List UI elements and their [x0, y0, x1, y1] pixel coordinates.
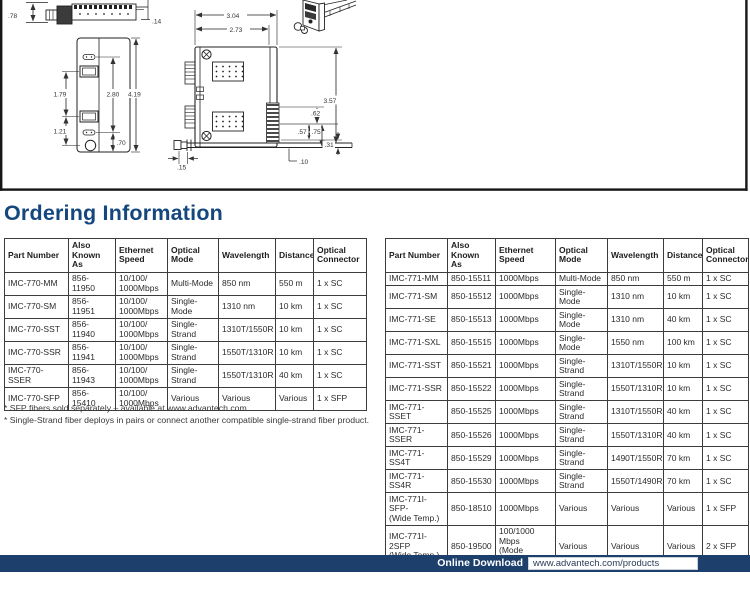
- side-view-drawing: .78 .14: [8, 0, 161, 26]
- table-cell: 1310 nm: [219, 295, 276, 318]
- dimension-label: .57: [298, 129, 307, 136]
- table-cell: 1550T/1310R: [219, 364, 276, 387]
- column-header: Wavelength: [608, 239, 664, 273]
- dimension-label: .15: [177, 165, 186, 172]
- ordering-table-imc770: Part NumberAlso Known AsEthernet SpeedOp…: [4, 238, 367, 411]
- table-cell: Single-Mode: [168, 295, 219, 318]
- table-cell: IMC-771-SS4R: [386, 470, 448, 493]
- table-cell: 1000Mbps: [496, 470, 556, 493]
- table-row: IMC-771-SSET850-155251000MbpsSingle-Stra…: [386, 401, 749, 424]
- online-download-label: Online Download: [0, 555, 523, 572]
- table-cell: 10 km: [664, 286, 703, 309]
- table-cell: 1 x SC: [703, 332, 749, 355]
- table-cell: IMC-770-MM: [5, 272, 69, 295]
- table-cell: 10 km: [276, 341, 314, 364]
- dimension-label: 3.57: [324, 98, 337, 105]
- table-cell: 550 m: [664, 272, 703, 286]
- isometric-view-drawing: [294, 0, 356, 34]
- table-row: IMC-771-SE850-155131000MbpsSingle-Mode13…: [386, 309, 749, 332]
- table-cell: 70 km: [664, 470, 703, 493]
- table-cell: 1000Mbps: [496, 424, 556, 447]
- column-header: Optical Mode: [556, 239, 608, 273]
- table-cell: 40 km: [664, 401, 703, 424]
- dimension-label: 4.19: [128, 92, 141, 99]
- table-cell: Multi-Mode: [556, 272, 608, 286]
- table-cell: 850-18510: [448, 493, 496, 526]
- column-header: Also Known As: [69, 239, 116, 273]
- table-cell: IMC-771I-SFP- (Wide Temp.): [386, 493, 448, 526]
- table-cell: 856-11950: [69, 272, 116, 295]
- table-cell: 10/100/ 1000Mbps: [116, 341, 168, 364]
- table-row: IMC-770-SSER856-1194310/100/ 1000MbpsSin…: [5, 364, 367, 387]
- table-cell: Single-Strand: [168, 364, 219, 387]
- table-row: IMC-771-SS4T850-155291000MbpsSingle-Stra…: [386, 447, 749, 470]
- column-header: Distance: [664, 239, 703, 273]
- table-cell: IMC-771-SSET: [386, 401, 448, 424]
- table-cell: 1310T/1550R: [608, 355, 664, 378]
- ordering-table-imc771: Part NumberAlso Known AsEthernet SpeedOp…: [385, 238, 749, 568]
- table-cell: 1 x SC: [703, 286, 749, 309]
- page-title: Ordering Information: [4, 201, 223, 226]
- dimension-label: 1.79: [54, 92, 67, 99]
- dimension-label: .75: [312, 129, 321, 136]
- dimension-label: 2.73: [230, 27, 243, 34]
- table-cell: IMC-771-SS4T: [386, 447, 448, 470]
- table-cell: 1000Mbps: [496, 272, 556, 286]
- dimension-label: .62: [311, 111, 320, 118]
- table-cell: Single-Strand: [556, 424, 608, 447]
- table-cell: 1000Mbps: [496, 355, 556, 378]
- table-cell: Single-Strand: [556, 447, 608, 470]
- column-header: Ethernet Speed: [496, 239, 556, 273]
- table-cell: 850-15513: [448, 309, 496, 332]
- table-cell: 40 km: [276, 364, 314, 387]
- column-header: Distance: [276, 239, 314, 273]
- dimension-label: .78: [8, 13, 17, 20]
- footnote-sfp: * SFP fibers sold separately – available…: [4, 403, 369, 415]
- table-cell: IMC-771-SST: [386, 355, 448, 378]
- footnote-single-strand: * Single-Strand fiber deploys in pairs o…: [4, 415, 369, 427]
- table-cell: 856-11941: [69, 341, 116, 364]
- table-cell: 1000Mbps: [496, 378, 556, 401]
- table-row: IMC-770-SST856-1194010/100/ 1000MbpsSing…: [5, 318, 367, 341]
- table-cell: Single-Strand: [168, 341, 219, 364]
- dimension-label: 1.21: [54, 129, 67, 136]
- table-cell: Single-Strand: [556, 355, 608, 378]
- table-row: IMC-771-MM850-155111000MbpsMulti-Mode850…: [386, 272, 749, 286]
- table-cell: Various: [556, 493, 608, 526]
- table-cell: Single-Strand: [556, 470, 608, 493]
- table-cell: 1000Mbps: [496, 309, 556, 332]
- table-cell: Single-Mode: [556, 286, 608, 309]
- table-cell: 850-15530: [448, 470, 496, 493]
- table-cell: 1310T/1550R: [608, 401, 664, 424]
- column-header: Part Number: [386, 239, 448, 273]
- table-cell: Various: [608, 493, 664, 526]
- column-header: Optical Connector: [314, 239, 367, 273]
- table-cell: IMC-770-SSR: [5, 341, 69, 364]
- table-cell: IMC-771-SE: [386, 309, 448, 332]
- table-row: IMC-771-SXL850-155151000MbpsSingle-Mode1…: [386, 332, 749, 355]
- table-row: IMC-770-SSR856-1194110/100/ 1000MbpsSing…: [5, 341, 367, 364]
- table-cell: 1550T/1310R: [219, 341, 276, 364]
- table-cell: 550 m: [276, 272, 314, 295]
- column-header: Optical Connector: [703, 239, 749, 273]
- table-cell: 1 x SC: [314, 341, 367, 364]
- table-cell: IMC-771-MM: [386, 272, 448, 286]
- table-cell: 10 km: [276, 295, 314, 318]
- datasheet-page: .78 .14 1.79 1.21: [0, 0, 750, 591]
- table-cell: 1550T/1310R: [608, 378, 664, 401]
- table-cell: 10/100/ 1000Mbps: [116, 364, 168, 387]
- table-cell: 1000Mbps: [496, 447, 556, 470]
- table-cell: 10/100/ 1000Mbps: [116, 272, 168, 295]
- table-cell: 40 km: [664, 424, 703, 447]
- header-row: Part NumberAlso Known AsEthernet SpeedOp…: [386, 239, 749, 273]
- table-cell: IMC-770-SM: [5, 295, 69, 318]
- column-header: Ethernet Speed: [116, 239, 168, 273]
- table-cell: 1310 nm: [608, 309, 664, 332]
- table-cell: 10/100/ 1000Mbps: [116, 295, 168, 318]
- table-cell: 1 x SC: [703, 378, 749, 401]
- table-cell: 1550 nm: [608, 332, 664, 355]
- dimension-label: .14: [152, 19, 161, 26]
- table-cell: 1310 nm: [608, 286, 664, 309]
- table-cell: IMC-770-SST: [5, 318, 69, 341]
- table-cell: 850-15515: [448, 332, 496, 355]
- table-cell: 70 km: [664, 447, 703, 470]
- table-cell: Various: [664, 493, 703, 526]
- table-cell: IMC-771-SM: [386, 286, 448, 309]
- table-cell: 1 x SC: [703, 470, 749, 493]
- table-cell: Single-Mode: [556, 309, 608, 332]
- table-cell: 1550T/1310R: [608, 424, 664, 447]
- table-cell: Single-Strand: [556, 378, 608, 401]
- table-cell: 1 x SC: [314, 295, 367, 318]
- table-cell: 1 x SC: [314, 272, 367, 295]
- table-cell: 10 km: [276, 318, 314, 341]
- table-cell: 1 x SC: [703, 401, 749, 424]
- footer-bar: Online Download www.advantech.com/produc…: [0, 555, 750, 572]
- mechanical-drawing: .78 .14 1.79 1.21: [0, 0, 750, 196]
- table-cell: 850-15512: [448, 286, 496, 309]
- table-cell: 856-11951: [69, 295, 116, 318]
- table-row: IMC-771-SSER850-155261000MbpsSingle-Stra…: [386, 424, 749, 447]
- table-cell: 10 km: [664, 378, 703, 401]
- table-cell: 1 x SC: [703, 309, 749, 332]
- table-cell: Single-Mode: [556, 332, 608, 355]
- table-cell: 1550T/1490R: [608, 470, 664, 493]
- table-cell: 1000Mbps: [496, 286, 556, 309]
- table-cell: 850 nm: [608, 272, 664, 286]
- download-url-box[interactable]: www.advantech.com/products: [528, 557, 698, 570]
- footnotes: * SFP fibers sold separately – available…: [4, 403, 369, 426]
- table-cell: Single-Strand: [168, 318, 219, 341]
- table-cell: 1 x SC: [703, 447, 749, 470]
- table-cell: 850-15529: [448, 447, 496, 470]
- table-cell: 856-11943: [69, 364, 116, 387]
- table-cell: IMC-771-SSR: [386, 378, 448, 401]
- column-header: Also Known As: [448, 239, 496, 273]
- table-cell: IMC-771-SXL: [386, 332, 448, 355]
- column-header: Optical Mode: [168, 239, 219, 273]
- table-row: IMC-771I-SFP- (Wide Temp.)850-185101000M…: [386, 493, 749, 526]
- table-cell: 850-15522: [448, 378, 496, 401]
- table-cell: 850-15525: [448, 401, 496, 424]
- dimension-label: .31: [325, 142, 334, 149]
- header-row: Part NumberAlso Known AsEthernet SpeedOp…: [5, 239, 367, 273]
- front-view-drawing: 1.79 1.21 2.80 4.19 .70: [52, 38, 145, 152]
- top-view-drawing: 3.04 2.73: [168, 10, 352, 172]
- table-cell: Single-Strand: [556, 401, 608, 424]
- table-cell: 1 x SC: [314, 318, 367, 341]
- table-cell: 1 x SC: [703, 355, 749, 378]
- dimension-label: 2.80: [107, 92, 120, 99]
- table-cell: 10 km: [664, 355, 703, 378]
- table-cell: 850-15521: [448, 355, 496, 378]
- table-cell: 850-15526: [448, 424, 496, 447]
- table-cell: 1000Mbps: [496, 332, 556, 355]
- table-cell: 856-11940: [69, 318, 116, 341]
- table-row: IMC-770-SM856-1195110/100/ 1000MbpsSingl…: [5, 295, 367, 318]
- table-row: IMC-771-SM850-155121000MbpsSingle-Mode13…: [386, 286, 749, 309]
- table-cell: 1 x SC: [314, 364, 367, 387]
- table-cell: 1310T/1550R: [219, 318, 276, 341]
- column-header: Part Number: [5, 239, 69, 273]
- table-cell: 850 nm: [219, 272, 276, 295]
- table-cell: 1000Mbps: [496, 493, 556, 526]
- dimension-label: .10: [299, 159, 308, 166]
- table-cell: 1 x SFP: [703, 493, 749, 526]
- table-cell: 100 km: [664, 332, 703, 355]
- table-row: IMC-770-MM856-1195010/100/ 1000MbpsMulti…: [5, 272, 367, 295]
- dimension-label: 3.04: [227, 13, 240, 20]
- table-cell: 1490T/1550R: [608, 447, 664, 470]
- table-row: IMC-771-SST850-155211000MbpsSingle-Stran…: [386, 355, 749, 378]
- table-cell: 1 x SC: [703, 424, 749, 447]
- table-cell: Multi-Mode: [168, 272, 219, 295]
- dimension-label: .70: [117, 140, 126, 147]
- table-cell: 40 km: [664, 309, 703, 332]
- table-cell: 10/100/ 1000Mbps: [116, 318, 168, 341]
- column-header: Wavelength: [219, 239, 276, 273]
- table-cell: 850-15511: [448, 272, 496, 286]
- table-row: IMC-771-SSR850-155221000MbpsSingle-Stran…: [386, 378, 749, 401]
- table-cell: IMC-770-SSER: [5, 364, 69, 387]
- table-cell: 1 x SC: [703, 272, 749, 286]
- table-cell: 1000Mbps: [496, 401, 556, 424]
- table-row: IMC-771-SS4R850-155301000MbpsSingle-Stra…: [386, 470, 749, 493]
- download-url[interactable]: www.advantech.com/products: [529, 558, 697, 569]
- table-cell: IMC-771-SSER: [386, 424, 448, 447]
